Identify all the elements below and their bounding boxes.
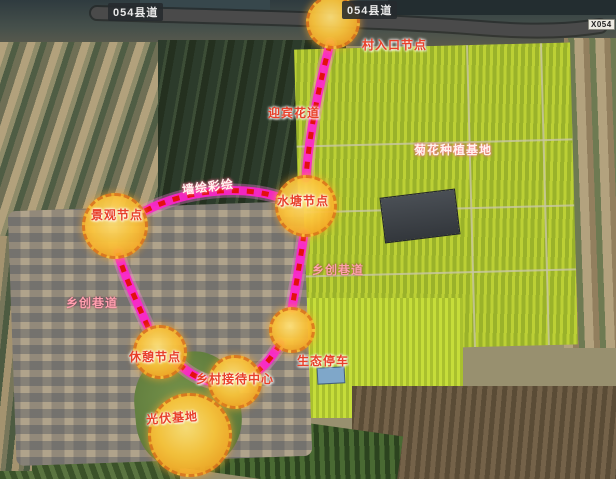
- label-creative-lane-west: 乡创巷道: [66, 294, 118, 311]
- label-creative-lane-east: 乡创巷道: [312, 261, 364, 278]
- node-circle-landscape: [82, 193, 148, 259]
- label-chrysanthemum-base: 菊花种植基地: [414, 141, 492, 158]
- node-circle-parking: [269, 307, 315, 353]
- label-entrance-node: 村入口节点: [362, 36, 427, 53]
- village-plan-map: 054县道 054县道 X054 村入口节点 水塘节点 景观节点 休憩节点 乡村…: [0, 0, 616, 479]
- node-circle-solar: [148, 393, 232, 477]
- road-tag-x054: X054: [588, 19, 615, 30]
- label-solar-base: 光伏基地: [145, 407, 198, 428]
- label-landscape-node: 景观节点: [91, 206, 143, 223]
- label-rest-node: 休憩节点: [129, 348, 181, 365]
- road-tag-054-left: 054县道: [108, 3, 163, 21]
- label-eco-parking: 生态停车: [297, 352, 349, 369]
- label-pond-node: 水塘节点: [277, 192, 329, 209]
- road-tag-054-mid: 054县道: [342, 1, 397, 19]
- label-flower-path: 迎宾花道: [268, 104, 320, 121]
- label-reception-center: 乡村接待中心: [196, 370, 274, 387]
